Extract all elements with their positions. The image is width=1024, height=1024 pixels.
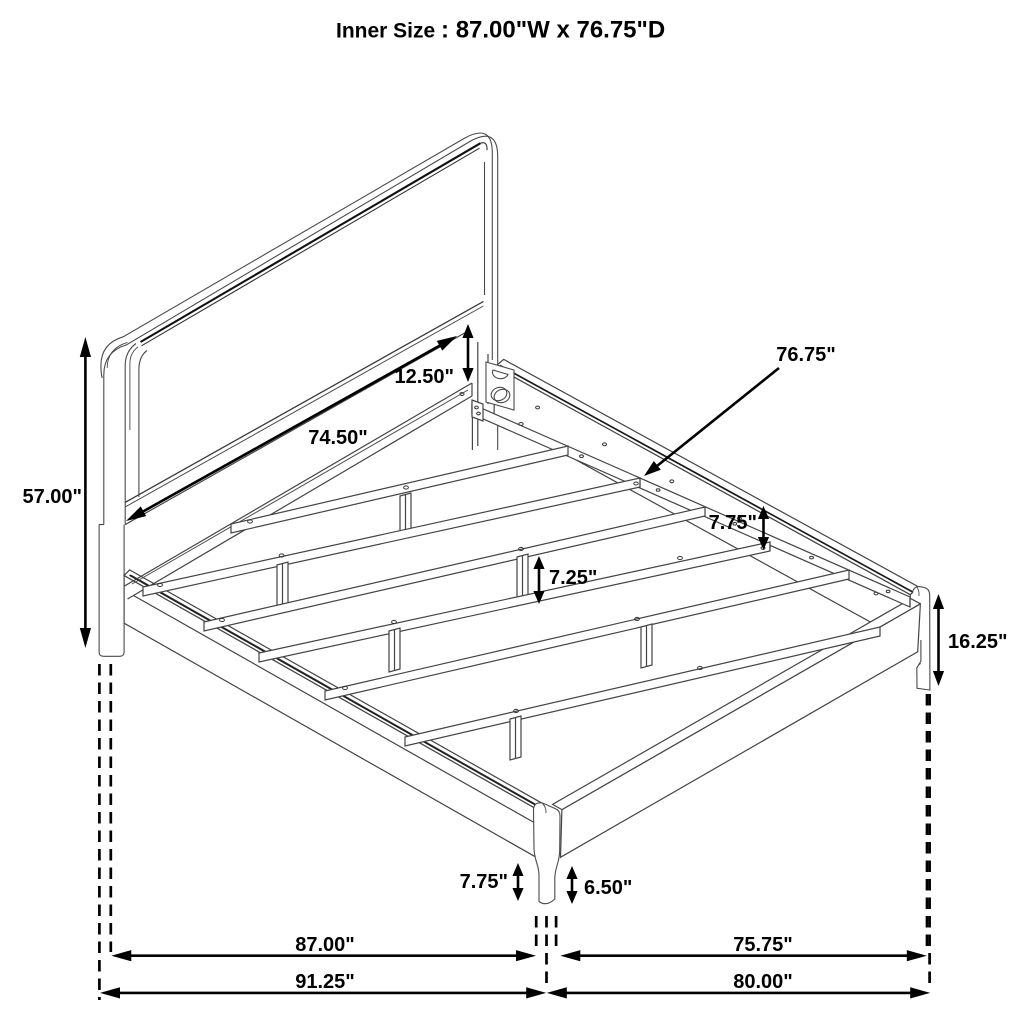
- svg-text:7.75": 7.75": [460, 871, 508, 893]
- svg-text:75.75": 75.75": [733, 934, 793, 956]
- svg-text:76.75": 76.75": [776, 344, 836, 366]
- svg-text:7.25": 7.25": [549, 567, 597, 589]
- svg-text:74.50": 74.50": [308, 427, 368, 449]
- svg-text:87.00": 87.00": [295, 934, 355, 956]
- svg-text:91.25": 91.25": [295, 971, 355, 993]
- svg-text:57.00": 57.00": [22, 486, 82, 508]
- svg-text:6.50": 6.50": [584, 877, 632, 899]
- svg-text:7.75": 7.75": [709, 512, 757, 534]
- svg-text:Inner Size : 87.00"W x 76.75"D: Inner Size : 87.00"W x 76.75"D: [336, 17, 665, 44]
- svg-text:16.25": 16.25": [948, 631, 1008, 653]
- svg-text:12.50": 12.50": [394, 366, 454, 388]
- svg-text:80.00": 80.00": [733, 971, 793, 993]
